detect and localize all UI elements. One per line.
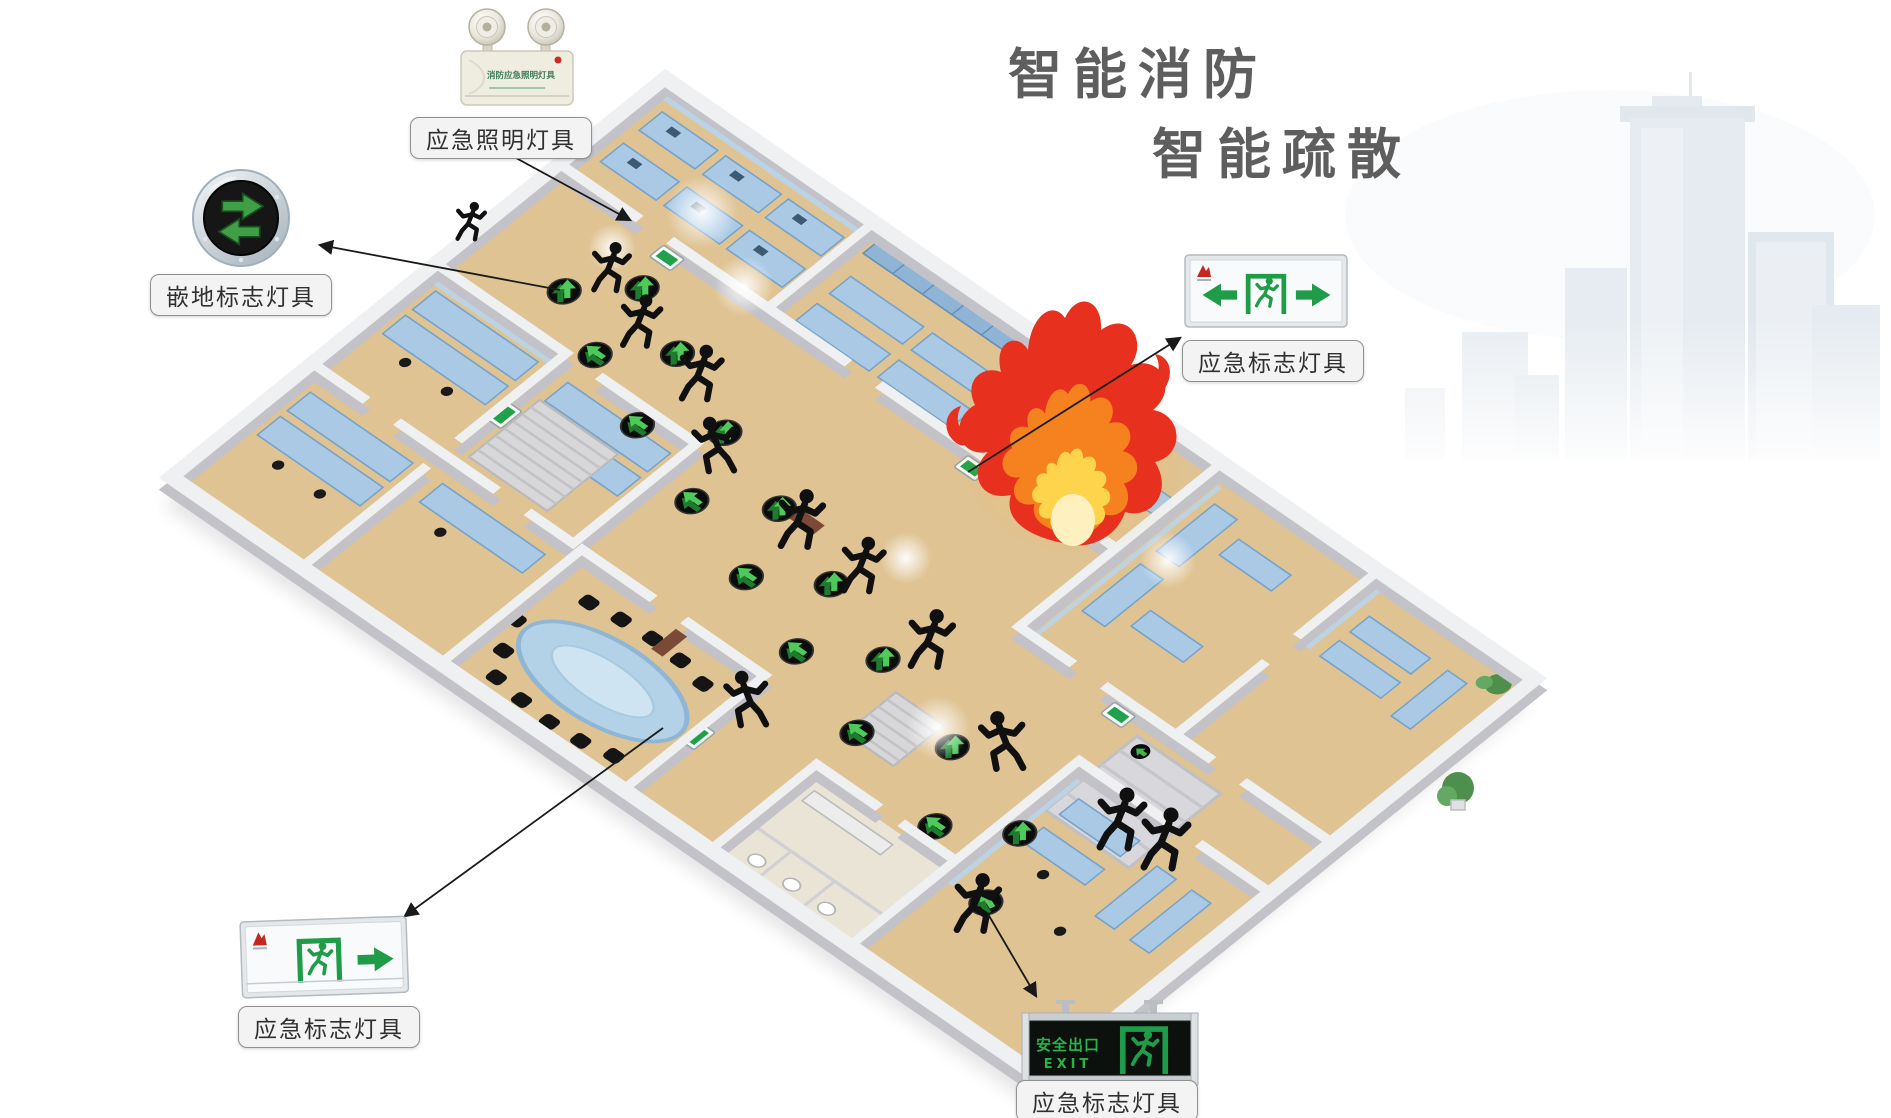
floor-marker-product [193,170,289,266]
title-line-2: 智能疏散 [1152,110,1412,189]
exit-sign-bottom-left-product [240,916,409,998]
label-exit-sign-right: 应急标志灯具 [1182,340,1364,382]
label-emergency-lighting: 应急照明灯具 [410,117,592,159]
title-line-1: 智能消防 [1008,30,1268,109]
illustration-canvas: 消防应急照明灯具 [0,0,1891,1118]
sign-text-en: EXIT [1044,1057,1093,1072]
label-floor-marker: 嵌地标志灯具 [150,274,332,316]
device-text: 消防应急照明灯具 [487,70,556,81]
label-exit-sign-bottom-center: 应急标志灯具 [1016,1080,1198,1118]
city-skyline [1345,72,1891,470]
plant [1437,772,1474,810]
poster: 消防应急照明灯具 [0,0,1891,1118]
label-exit-sign-bottom-left: 应急标志灯具 [238,1006,420,1048]
emergency-light-product: 消防应急照明灯具 [461,9,573,105]
exit-sign-hanging-product: 安全出口 EXIT [1022,1000,1198,1085]
exit-sign-right-product [1185,255,1347,327]
sign-text-cn: 安全出口 [1036,1036,1100,1054]
